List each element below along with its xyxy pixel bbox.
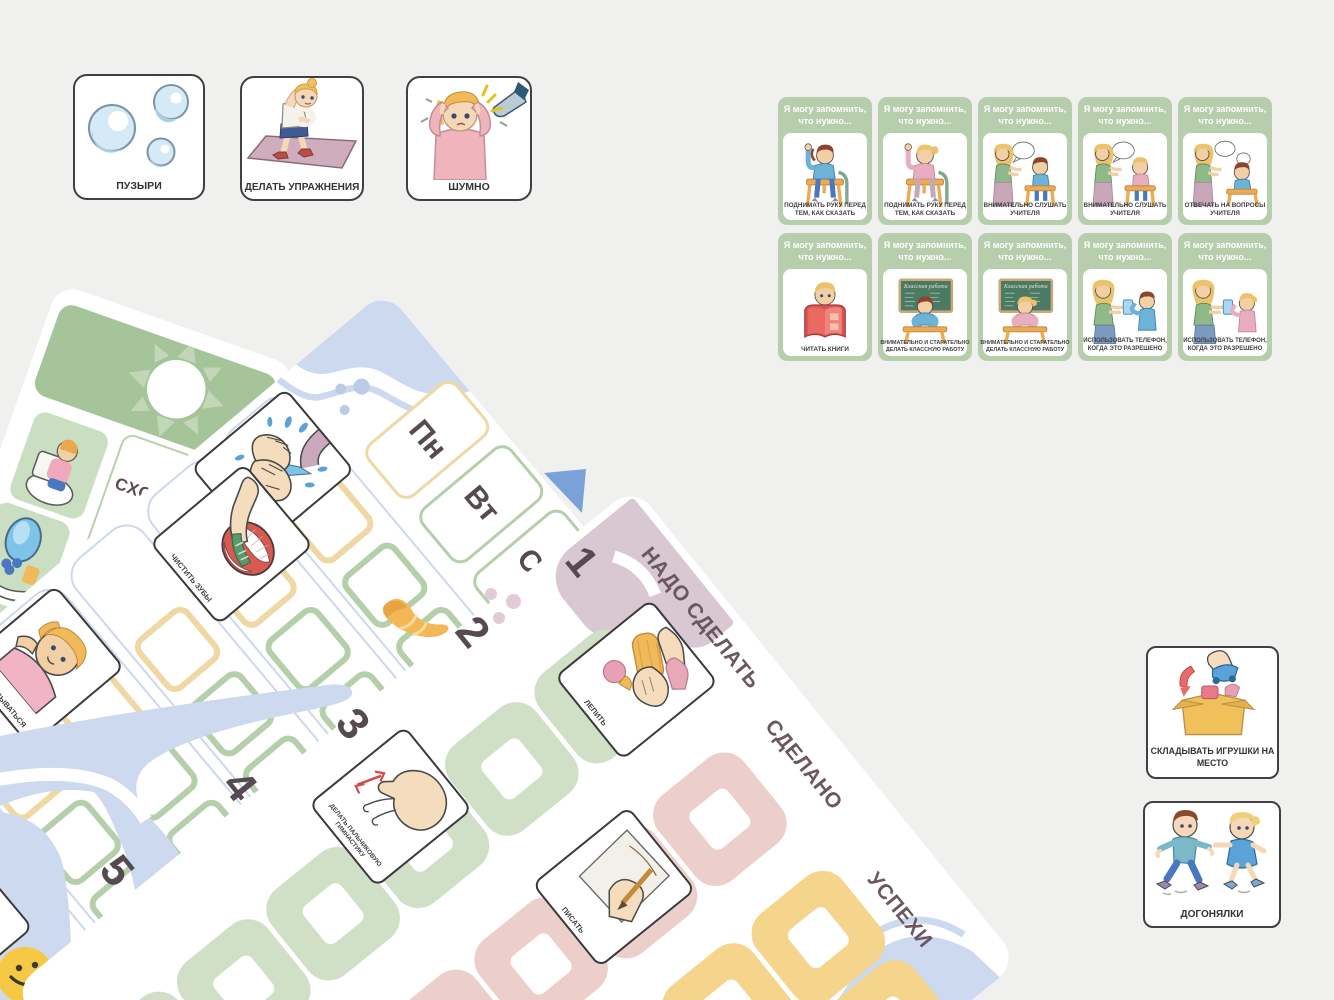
svg-text:Классная работа: Классная работа: [1003, 283, 1048, 290]
svg-text:Классная работа: Классная работа: [903, 283, 948, 290]
